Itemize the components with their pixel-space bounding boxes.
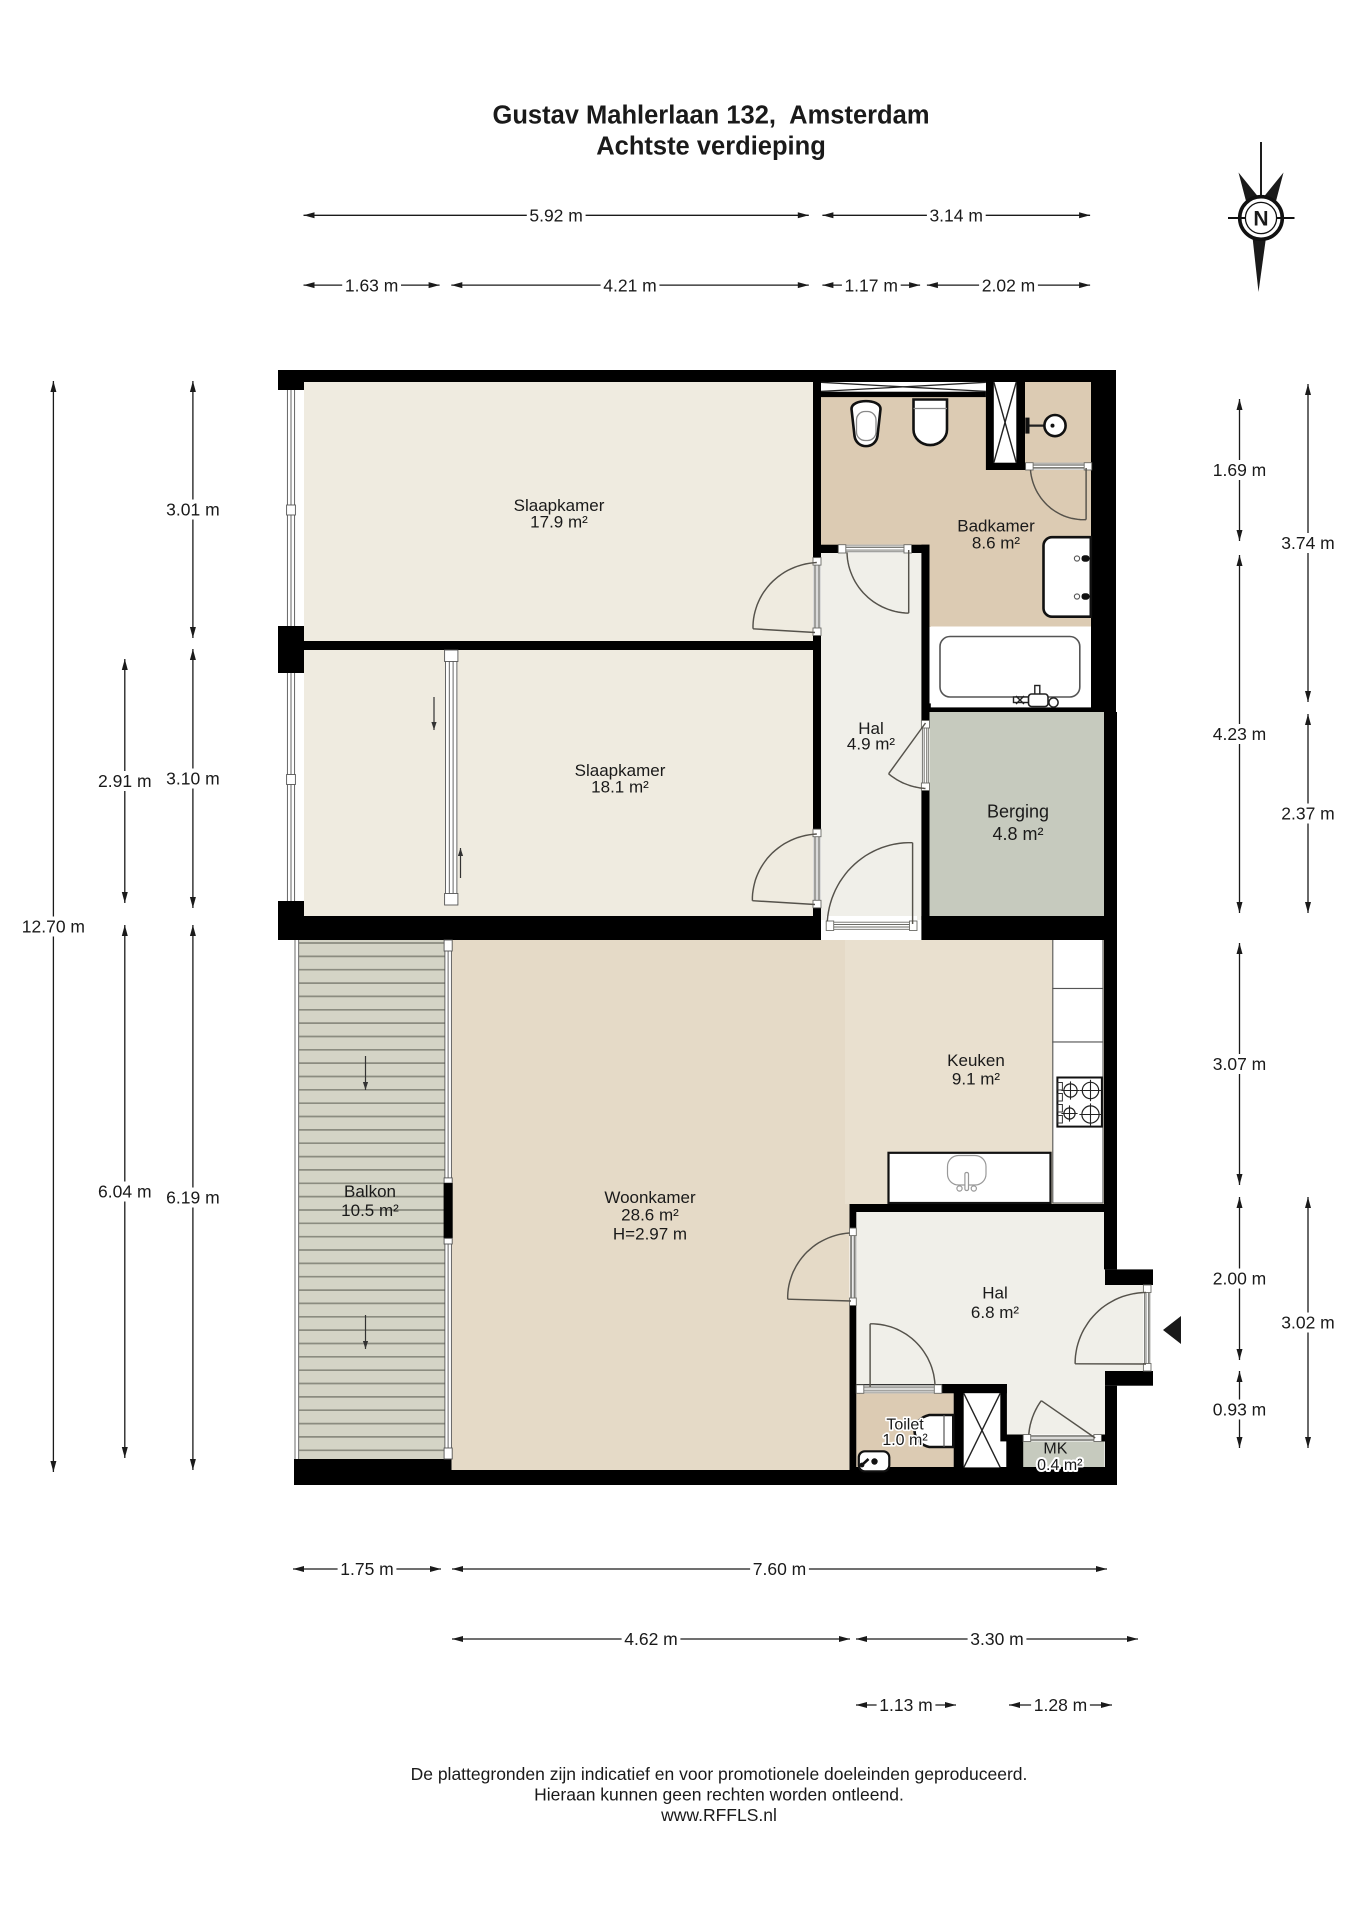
svg-text:6.8 m²: 6.8 m² bbox=[971, 1303, 1020, 1322]
svg-text:N: N bbox=[1253, 208, 1268, 231]
svg-text:6.19 m: 6.19 m bbox=[166, 1188, 220, 1208]
svg-text:4.62 m: 4.62 m bbox=[624, 1629, 678, 1649]
svg-text:Toilet: Toilet bbox=[886, 1416, 924, 1433]
svg-text:1.63 m: 1.63 m bbox=[345, 275, 399, 295]
svg-text:18.1 m²: 18.1 m² bbox=[591, 778, 649, 797]
svg-text:3.30 m: 3.30 m bbox=[970, 1629, 1024, 1649]
svg-text:2.02 m: 2.02 m bbox=[982, 275, 1036, 295]
svg-text:4.8 m²: 4.8 m² bbox=[992, 824, 1043, 844]
svg-text:10.5 m²: 10.5 m² bbox=[341, 1201, 399, 1220]
svg-text:4.9 m²: 4.9 m² bbox=[847, 734, 896, 753]
svg-text:1.0 m²: 1.0 m² bbox=[882, 1432, 928, 1449]
svg-text:1.75 m: 1.75 m bbox=[340, 1559, 394, 1579]
svg-text:4.21 m: 4.21 m bbox=[603, 275, 657, 295]
svg-text:7.60 m: 7.60 m bbox=[753, 1559, 807, 1579]
svg-text:0.93 m: 0.93 m bbox=[1213, 1400, 1267, 1420]
svg-text:Woonkamer: Woonkamer bbox=[604, 1188, 696, 1207]
svg-text:Hieraan kunnen geen rechten wo: Hieraan kunnen geen rechten worden ontle… bbox=[534, 1785, 904, 1805]
svg-text:28.6 m²: 28.6 m² bbox=[621, 1206, 679, 1225]
svg-text:2.37 m: 2.37 m bbox=[1281, 804, 1335, 824]
svg-text:3.01 m: 3.01 m bbox=[166, 500, 220, 520]
svg-text:17.9 m²: 17.9 m² bbox=[530, 513, 588, 532]
svg-text:3.02 m: 3.02 m bbox=[1281, 1313, 1335, 1333]
svg-text:H=2.97 m: H=2.97 m bbox=[613, 1225, 687, 1244]
svg-text:4.23 m: 4.23 m bbox=[1213, 724, 1267, 744]
svg-text:1.13 m: 1.13 m bbox=[879, 1695, 933, 1715]
svg-text:3.74 m: 3.74 m bbox=[1281, 533, 1335, 553]
svg-text:3.14 m: 3.14 m bbox=[929, 206, 983, 226]
svg-text:3.07 m: 3.07 m bbox=[1213, 1054, 1267, 1074]
svg-text:Keuken: Keuken bbox=[947, 1051, 1005, 1070]
svg-text:0.4 m²: 0.4 m² bbox=[1037, 1457, 1083, 1474]
svg-text:Gustav Mahlerlaan 132, Amster: Gustav Mahlerlaan 132, Amsterdam bbox=[493, 102, 930, 130]
svg-text:8.6 m²: 8.6 m² bbox=[972, 534, 1021, 553]
svg-text:6.04 m: 6.04 m bbox=[98, 1182, 152, 1202]
svg-text:1.17 m: 1.17 m bbox=[844, 275, 898, 295]
svg-text:2.00 m: 2.00 m bbox=[1213, 1269, 1267, 1289]
svg-text:www.RFFLS.nl: www.RFFLS.nl bbox=[660, 1805, 777, 1825]
svg-text:9.1 m²: 9.1 m² bbox=[952, 1069, 1001, 1088]
svg-text:De plattegronden zijn indicati: De plattegronden zijn indicatief en voor… bbox=[411, 1764, 1028, 1784]
svg-text:12.70 m: 12.70 m bbox=[22, 917, 85, 937]
svg-text:1.28 m: 1.28 m bbox=[1034, 1695, 1088, 1715]
svg-text:MK: MK bbox=[1043, 1440, 1067, 1457]
svg-text:Balkon: Balkon bbox=[344, 1182, 396, 1201]
svg-text:3.10 m: 3.10 m bbox=[166, 769, 220, 789]
svg-text:Hal: Hal bbox=[982, 1283, 1008, 1302]
svg-text:1.69 m: 1.69 m bbox=[1213, 460, 1267, 480]
svg-text:Berging: Berging bbox=[987, 801, 1049, 821]
svg-text:Achtste verdieping: Achtste verdieping bbox=[596, 133, 826, 161]
svg-text:5.92 m: 5.92 m bbox=[529, 206, 583, 226]
svg-text:2.91 m: 2.91 m bbox=[98, 771, 152, 791]
